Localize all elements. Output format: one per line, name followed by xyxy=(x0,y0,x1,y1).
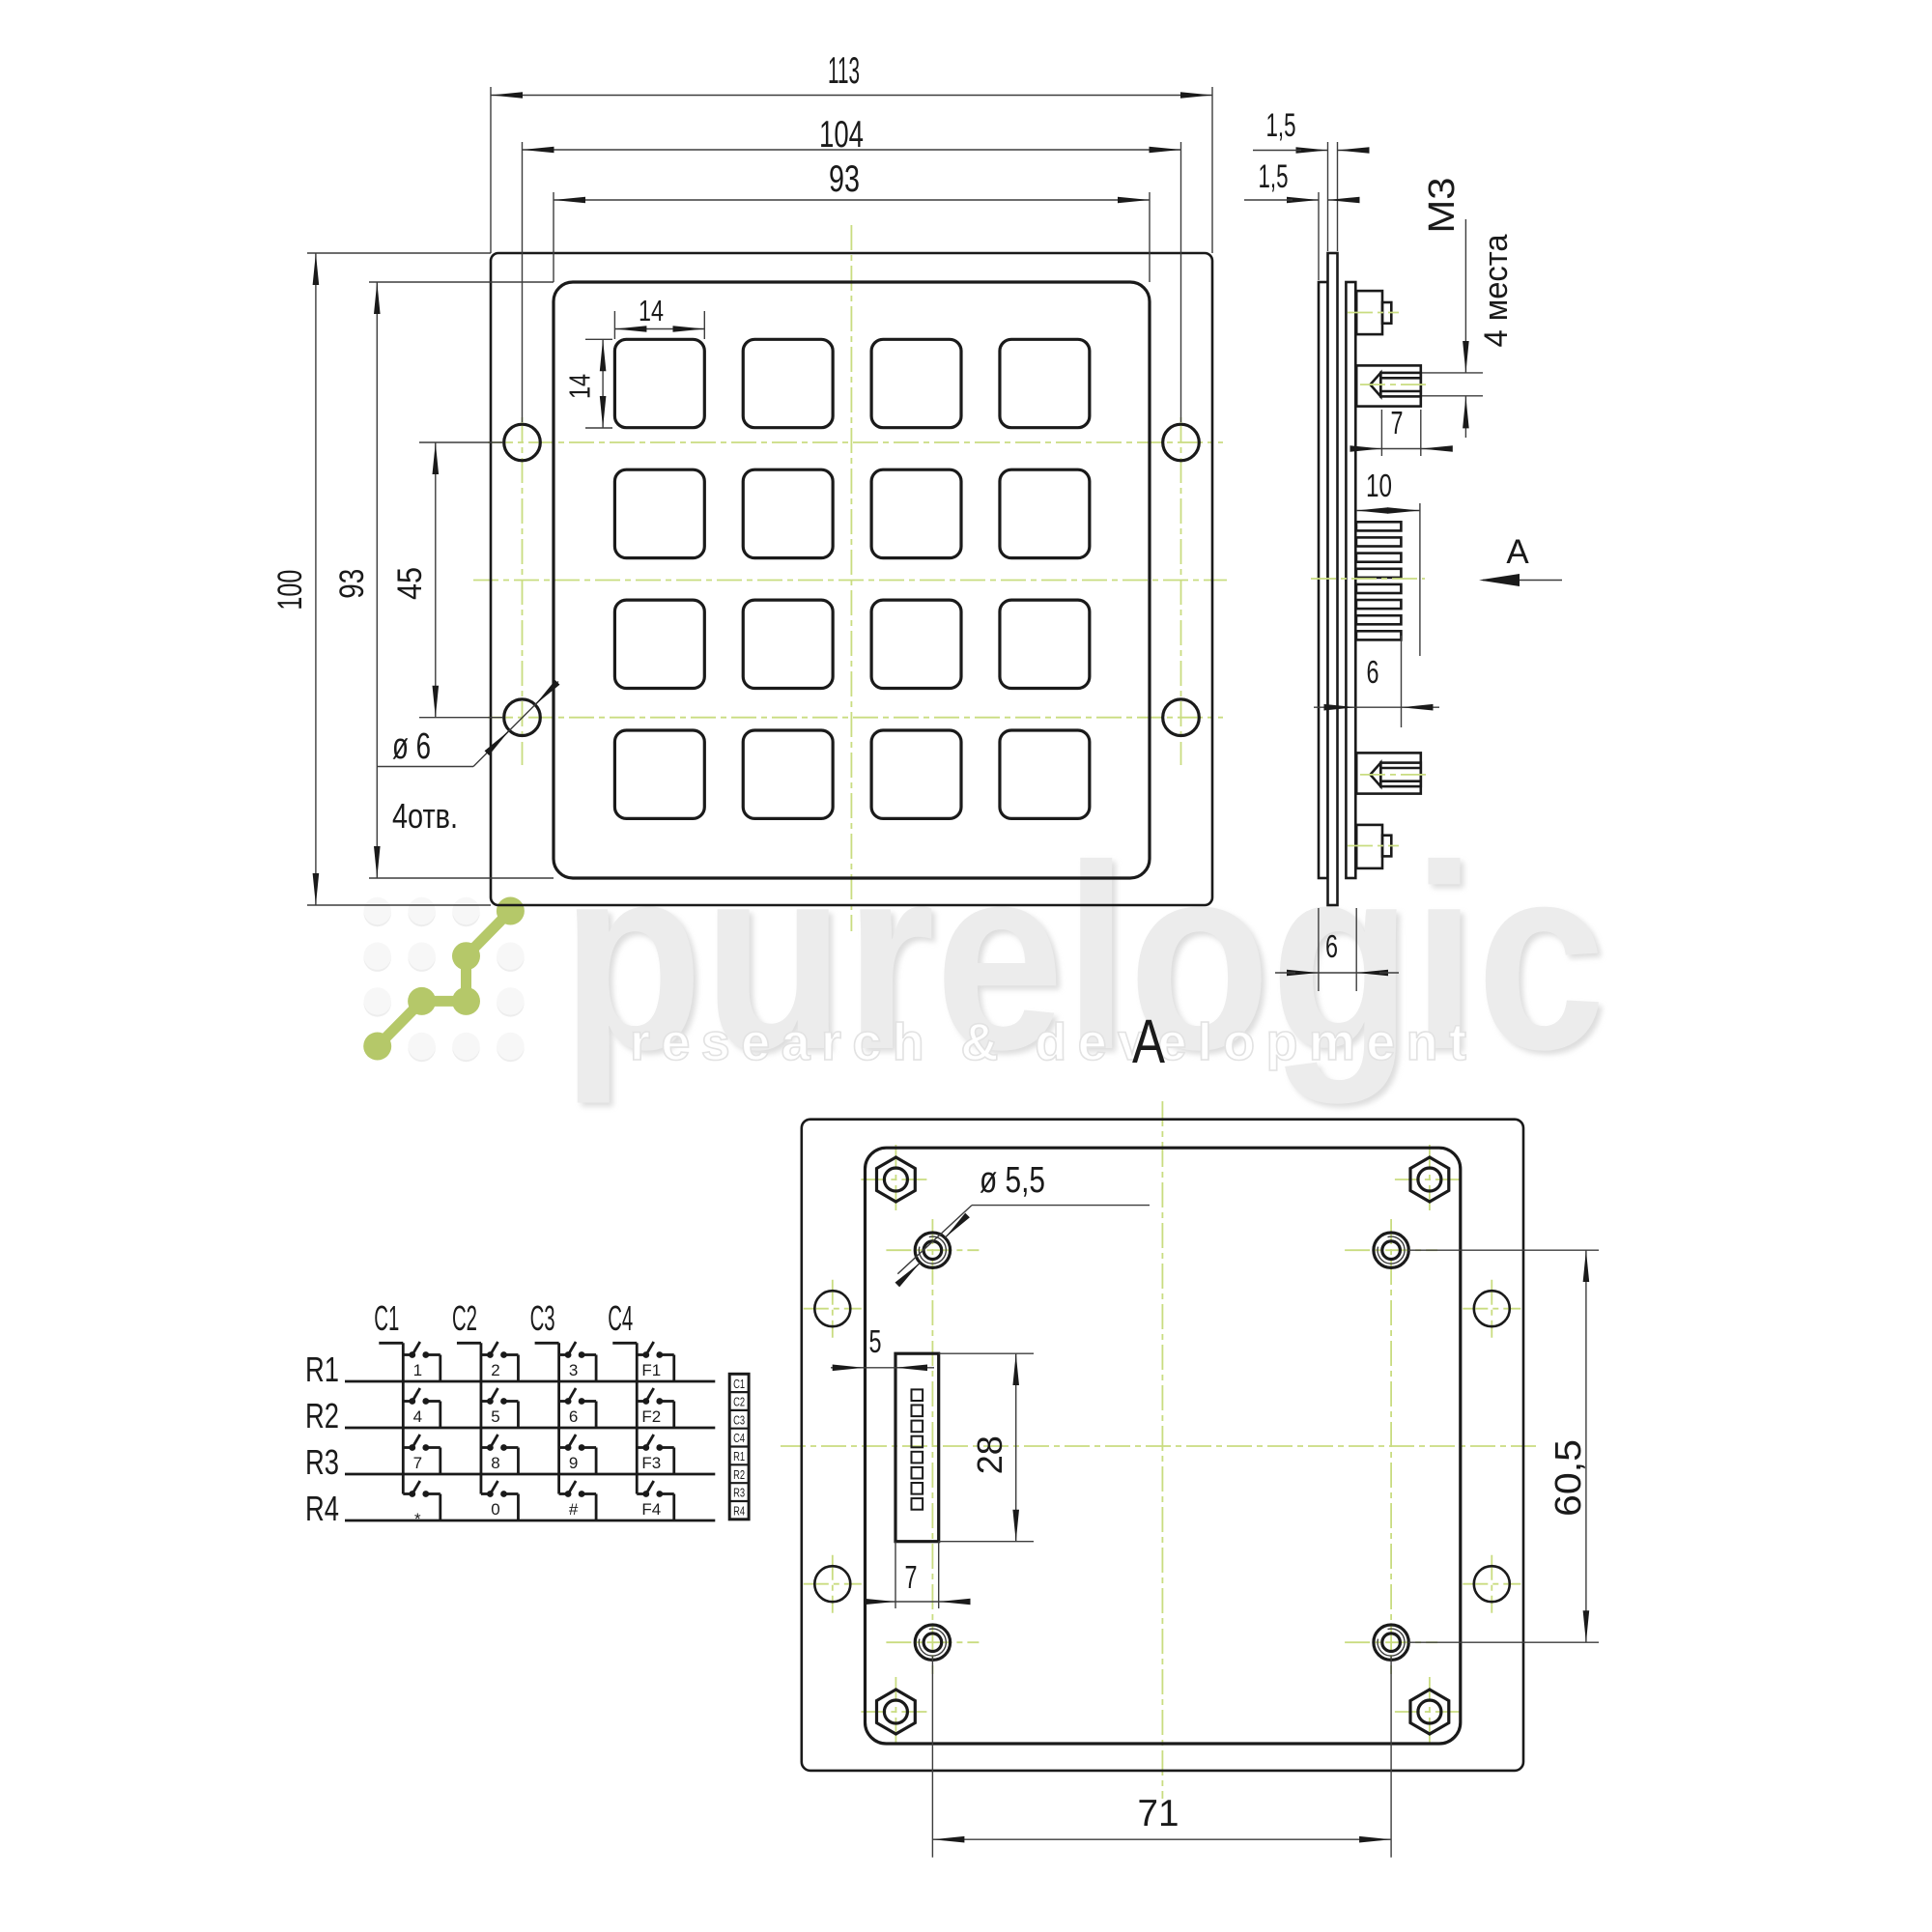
svg-text:C3: C3 xyxy=(530,1298,555,1338)
svg-text:1,5: 1,5 xyxy=(1266,107,1296,144)
svg-text:C4: C4 xyxy=(608,1298,633,1338)
svg-text:6: 6 xyxy=(569,1407,578,1426)
svg-text:M3: M3 xyxy=(1422,178,1463,234)
svg-text:R1: R1 xyxy=(305,1350,339,1389)
svg-text:3: 3 xyxy=(569,1361,578,1379)
svg-text:*: * xyxy=(414,1510,421,1528)
svg-text:ø 6: ø 6 xyxy=(392,726,431,767)
svg-text:R2: R2 xyxy=(733,1467,745,1482)
svg-text:104: 104 xyxy=(819,114,864,156)
svg-text:R2: R2 xyxy=(305,1396,339,1435)
svg-text:4 места: 4 места xyxy=(1478,234,1515,347)
svg-text:7: 7 xyxy=(413,1454,422,1472)
svg-text:0: 0 xyxy=(491,1500,499,1519)
svg-text:8: 8 xyxy=(491,1454,499,1472)
svg-text:A: A xyxy=(1132,1007,1165,1076)
svg-text:F1: F1 xyxy=(641,1361,661,1379)
svg-text:6: 6 xyxy=(1367,654,1379,690)
svg-text:5: 5 xyxy=(491,1407,499,1426)
svg-text:A: A xyxy=(1506,533,1529,571)
svg-text:93: 93 xyxy=(829,158,860,200)
svg-text:60,5: 60,5 xyxy=(1548,1439,1589,1517)
svg-text:45: 45 xyxy=(391,567,429,600)
svg-text:C1: C1 xyxy=(733,1377,745,1391)
svg-text:C2: C2 xyxy=(452,1298,477,1338)
svg-text:R1: R1 xyxy=(733,1449,745,1463)
svg-text:C3: C3 xyxy=(733,1412,745,1427)
svg-text:F3: F3 xyxy=(641,1454,661,1472)
svg-text:research & development: research & development xyxy=(630,1013,1466,1071)
svg-text:1,5: 1,5 xyxy=(1259,158,1289,195)
svg-text:6: 6 xyxy=(1325,928,1338,964)
svg-text:#: # xyxy=(569,1500,579,1519)
svg-text:2: 2 xyxy=(491,1361,499,1379)
svg-text:14: 14 xyxy=(639,294,664,327)
svg-text:R3: R3 xyxy=(733,1486,745,1500)
svg-text:C4: C4 xyxy=(733,1431,745,1445)
svg-text:100: 100 xyxy=(271,570,309,611)
svg-text:R4: R4 xyxy=(733,1503,745,1518)
svg-text:7: 7 xyxy=(1391,405,1404,440)
svg-text:71: 71 xyxy=(1138,1793,1179,1834)
svg-text:ø 5,5: ø 5,5 xyxy=(980,1160,1045,1201)
svg-text:7: 7 xyxy=(905,1559,918,1595)
svg-text:R3: R3 xyxy=(305,1442,339,1482)
svg-text:9: 9 xyxy=(569,1454,578,1472)
svg-text:4: 4 xyxy=(413,1407,422,1426)
svg-text:F2: F2 xyxy=(641,1407,661,1426)
svg-text:5: 5 xyxy=(869,1323,882,1359)
svg-text:28: 28 xyxy=(970,1435,1009,1474)
svg-text:93: 93 xyxy=(333,569,371,599)
svg-text:14: 14 xyxy=(562,374,596,399)
svg-text:R4: R4 xyxy=(305,1489,339,1528)
svg-text:10: 10 xyxy=(1366,468,1392,503)
svg-text:C1: C1 xyxy=(374,1298,399,1338)
svg-text:4отв.: 4отв. xyxy=(392,796,458,836)
svg-text:F4: F4 xyxy=(641,1500,661,1519)
svg-text:1: 1 xyxy=(413,1361,422,1379)
svg-text:113: 113 xyxy=(828,50,860,92)
svg-text:C2: C2 xyxy=(733,1395,745,1409)
